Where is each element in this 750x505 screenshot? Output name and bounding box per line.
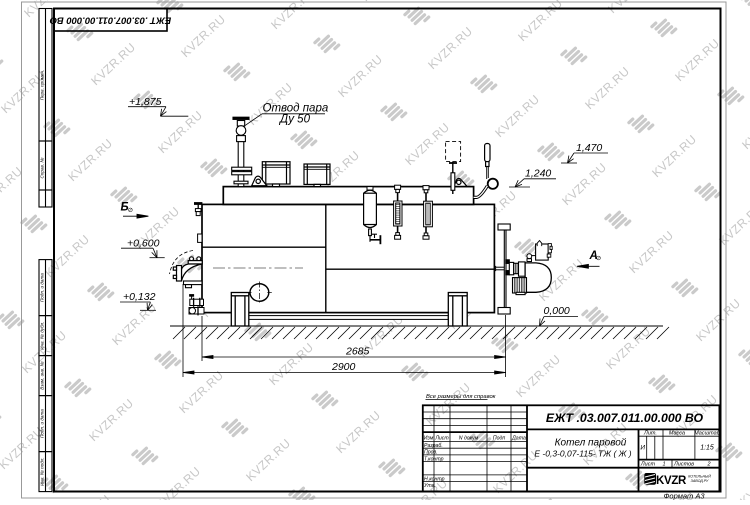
svg-text:Лист: Лист [640,462,656,468]
svg-text:2900: 2900 [331,361,356,373]
svg-text:ЕЖТ .03.007.011.00.000 ВО: ЕЖТ .03.007.011.00.000 ВО [49,14,171,25]
svg-text:1,470: 1,470 [576,142,602,154]
svg-text:0,000: 0,000 [544,305,570,317]
svg-text:Лит.: Лит. [643,430,657,436]
svg-text:Е -0,3-0,07-115- ТЖ ( Ж ): Е -0,3-0,07-115- ТЖ ( Ж ) [534,449,631,459]
svg-text:Подп. и дата: Подп. и дата [40,409,45,438]
svg-text:И: И [640,444,645,451]
svg-text:+0,600: +0,600 [127,238,160,250]
svg-text:Листов: Листов [673,462,694,468]
svg-text:Утв.: Утв. [424,483,436,489]
svg-text:Пров.: Пров. [424,450,438,456]
svg-text:+0,132: +0,132 [123,291,156,303]
svg-text:Перв. примен.: Перв. примен. [40,70,45,101]
svg-text:Подп. и дата: Подп. и дата [40,273,45,302]
svg-text:Подп: Подп [493,436,506,442]
svg-text:А: А [589,250,598,262]
svg-text:ЗАВОД.РУ: ЗАВОД.РУ [691,479,709,483]
svg-text:Инв. № дубл.: Инв. № дубл. [40,321,45,349]
svg-text:Формат А3: Формат А3 [663,492,705,501]
svg-text:Дата: Дата [511,436,526,442]
svg-text:Котел паровой: Котел паровой [555,438,627,449]
svg-text:Справ. №: Справ. № [40,158,45,179]
svg-text:KVZR: KVZR [656,475,687,487]
svg-text:Б: Б [121,202,129,214]
svg-text:КОТЕЛЬНЫЙ: КОТЕЛЬНЫЙ [688,475,711,479]
svg-text:Ду 50: Ду 50 [278,114,311,126]
svg-text:Н.контр: Н.контр [424,476,445,482]
svg-text:1,240: 1,240 [525,168,551,180]
svg-text:Разраб.: Разраб. [424,443,443,449]
svg-text:Масштаб: Масштаб [694,430,721,436]
svg-text:Т.контр: Т.контр [424,456,444,462]
svg-text:Масса: Масса [669,430,685,436]
svg-text:+1,875: +1,875 [129,96,162,108]
svg-text:2: 2 [706,462,710,468]
svg-text:Взам. инв. №: Взам. инв. № [40,361,45,389]
svg-text:1: 1 [662,462,665,468]
svg-text:2685: 2685 [345,346,370,358]
svg-text:Изм: Изм [424,436,434,442]
svg-text:Лист: Лист [434,436,449,442]
svg-text:Инв. № подл.: Инв. № подл. [40,457,45,486]
svg-text:N докум: N докум [459,436,479,442]
svg-text:1:15: 1:15 [700,445,714,452]
svg-text:ЕЖТ .03.007.011.00.000 ВО: ЕЖТ .03.007.011.00.000 ВО [546,411,704,425]
